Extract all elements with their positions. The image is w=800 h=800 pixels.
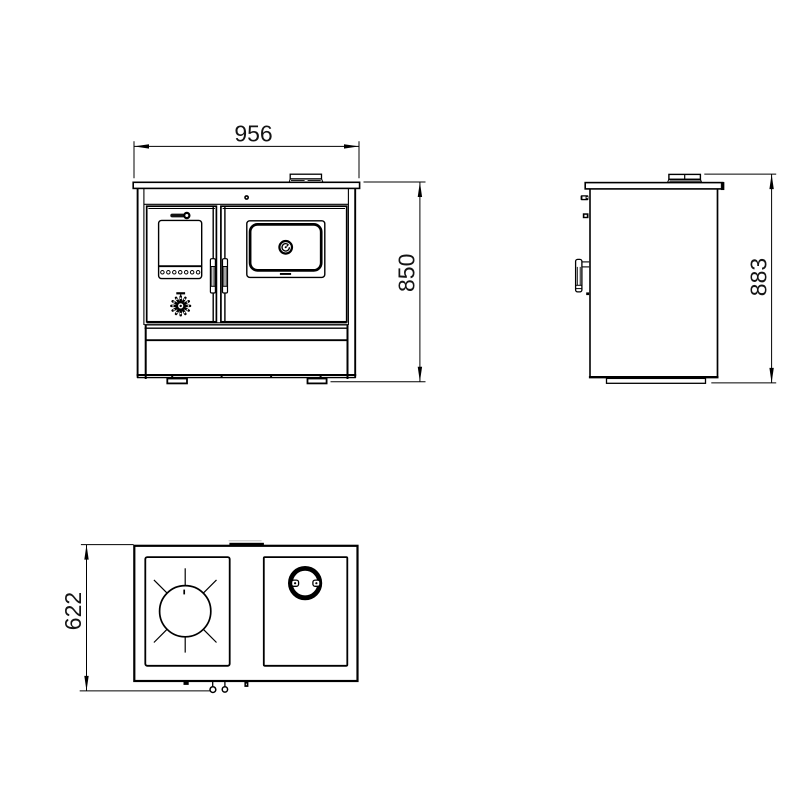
svg-text:850: 850 [393, 254, 419, 292]
svg-text:956: 956 [234, 120, 272, 146]
svg-text:883: 883 [745, 258, 771, 296]
svg-text:622: 622 [60, 592, 86, 630]
